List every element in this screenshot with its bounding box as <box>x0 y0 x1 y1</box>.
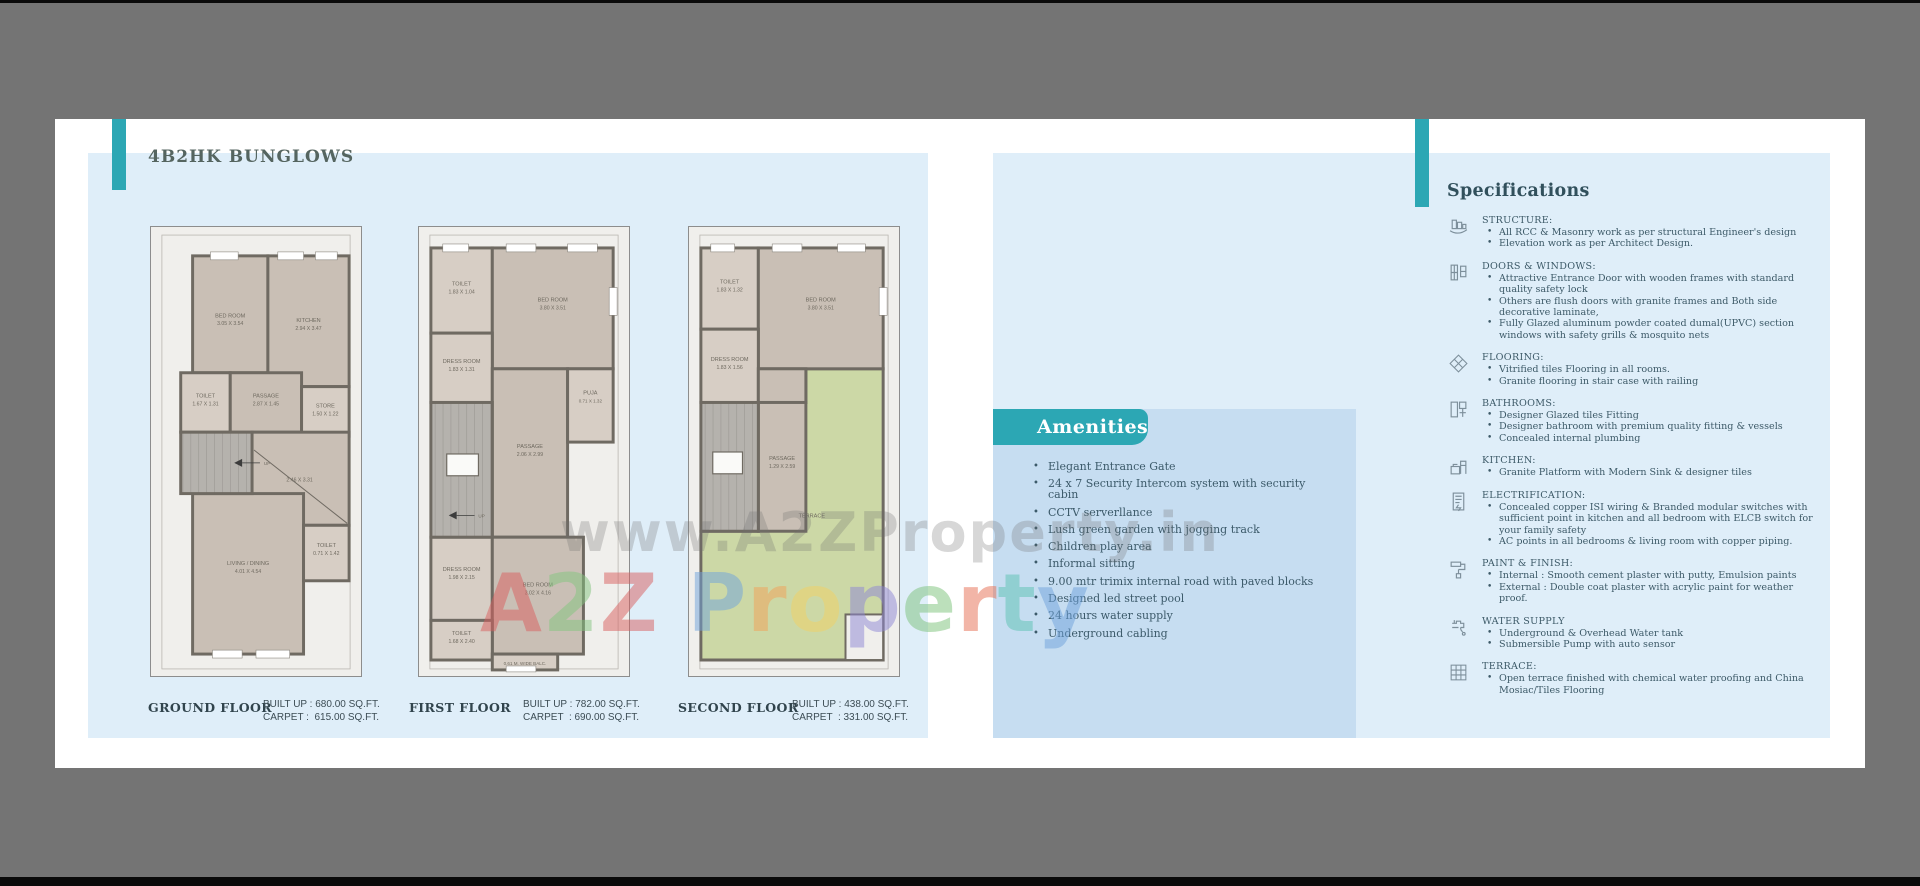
spec-item: AC points in all bedrooms & living room … <box>1482 536 1822 547</box>
room-dims: 3.02 X 4.16 <box>525 591 551 597</box>
room-label: TOILET <box>452 631 472 637</box>
second-floor-name: SECOND FLOOR <box>678 700 799 715</box>
spec-heading: KITCHEN: <box>1482 455 1822 466</box>
first-floor-name: FIRST FLOOR <box>409 700 511 715</box>
stairs-up-label: UP <box>264 461 270 466</box>
kitchen-icon <box>1448 456 1469 477</box>
spec-item: Elevation work as per Architect Design. <box>1482 238 1822 249</box>
room-label: PASSAGE <box>517 444 543 450</box>
doors-windows-icon <box>1448 262 1469 283</box>
room-label: TOILET <box>720 280 740 286</box>
terrace-label: TERRACE <box>799 513 826 519</box>
ground-floor-plan: UP BED ROOM 3.05 X 3.54 KITCHEN 2.94 X 3… <box>150 226 362 677</box>
spec-heading: ELECTRIFICATION: <box>1482 490 1822 501</box>
ground-floor-name: GROUND FLOOR <box>148 700 272 715</box>
spec-heading: BATHROOMS: <box>1482 398 1822 409</box>
room-dims: 3.05 X 3.54 <box>217 321 243 327</box>
second-floor-plan: TOILET 1.83 X 1.32 BED ROOM 3.80 X 3.51 … <box>688 226 900 677</box>
spec-item: Designer bathroom with premium quality f… <box>1482 421 1822 432</box>
spec-item: Designer Glazed tiles Fitting <box>1482 410 1822 421</box>
spec-sections: STRUCTURE:All RCC & Masonry work as per … <box>1448 215 1840 707</box>
room-label: DRESS ROOM <box>711 357 749 363</box>
floor-labels-row: GROUND FLOOR BUILT UP : 680.00 SQ.FT.CAR… <box>55 697 975 731</box>
room-label: LIVING / DINING <box>227 561 269 567</box>
amenity-item: Underground cabling <box>1027 628 1337 639</box>
room-dims: 1.83 X 1.31 <box>448 367 474 373</box>
spec-section: FLOORING:Vitrified tiles Flooring in all… <box>1448 352 1840 387</box>
teal-accent-bar-right <box>1415 119 1429 207</box>
first-floor-areas: BUILT UP : 782.00 SQ.FT.CARPET : 690.00 … <box>523 698 640 724</box>
second-floor-areas: BUILT UP : 438.00 SQ.FT.CARPET : 331.00 … <box>792 698 909 724</box>
room-dims: 2.46 X 3.31 <box>286 478 312 484</box>
room-label: TOILET <box>196 394 216 400</box>
spec-heading: FLOORING: <box>1482 352 1822 363</box>
room-dims: 2.94 X 3.47 <box>295 326 321 332</box>
bottom-border-line <box>0 877 1920 886</box>
spec-heading: TERRACE: <box>1482 661 1822 672</box>
room-dims: 1.83 X 1.04 <box>448 290 474 296</box>
spec-section: ELECTRIFICATION:Concealed copper ISI wir… <box>1448 490 1840 548</box>
spec-section: KITCHEN:Granite Platform with Modern Sin… <box>1448 455 1840 478</box>
room-dims: 2.06 X 2.99 <box>517 452 543 458</box>
room-label: TOILET <box>317 543 337 549</box>
spec-heading: STRUCTURE: <box>1482 215 1822 226</box>
room-label: BED ROOM <box>523 583 554 589</box>
specifications-title: Specifications <box>1447 181 1590 201</box>
room-label: DRESS ROOM <box>443 359 481 365</box>
room-label: BED ROOM <box>806 297 837 303</box>
spec-heading: DOORS & WINDOWS: <box>1482 261 1822 272</box>
room-dims: 1.83 X 1.56 <box>716 365 742 371</box>
room-dims: 1.98 X 2.15 <box>448 575 474 581</box>
spec-item: Open terrace finished with chemical wate… <box>1482 673 1822 696</box>
stairs-up-label: UP <box>478 513 484 518</box>
balcony-label: 0.61 M. WIDE BALC. <box>504 661 547 666</box>
room-label: TOILET <box>452 282 472 288</box>
watermark-letter: r <box>957 557 997 650</box>
amenities-list: Elegant Entrance Gate24 x 7 Security Int… <box>1027 461 1337 645</box>
spec-section: TERRACE:Open terrace finished with chemi… <box>1448 661 1840 696</box>
ground-floor-areas: BUILT UP : 680.00 SQ.FT.CARPET : 615.00 … <box>263 698 380 724</box>
water-supply-icon <box>1448 617 1469 638</box>
spec-item: Concealed internal plumbing <box>1482 433 1822 444</box>
terrace-icon <box>1448 662 1469 683</box>
spec-item: Fully Glazed aluminum powder coated duma… <box>1482 318 1822 341</box>
structure-icon <box>1448 216 1469 237</box>
amenity-item: 24 hours water supply <box>1027 610 1337 621</box>
bathrooms-icon <box>1448 399 1469 420</box>
room-dims: 1.83 X 1.32 <box>716 288 742 294</box>
room-dims: 1.67 X 1.31 <box>192 401 218 407</box>
spec-item: Submersible Pump with auto sensor <box>1482 639 1822 650</box>
amenity-item: 9.00 mtr trimix internal road with paved… <box>1027 576 1337 587</box>
teal-accent-bar-left <box>112 119 126 190</box>
room-dims: 3.80 X 3.51 <box>540 305 566 311</box>
spec-item: All RCC & Masonry work as per structural… <box>1482 227 1822 238</box>
first-floor-plan: UP TOILET 1.83 X 1.04 BED ROOM 3.80 X 3.… <box>418 226 630 677</box>
ground-floor-plan-drawing: UP BED ROOM 3.05 X 3.54 KITCHEN 2.94 X 3… <box>151 227 361 676</box>
room-dims: 1.29 X 2.59 <box>769 464 795 470</box>
spec-heading: PAINT & FINISH: <box>1482 558 1822 569</box>
room-label: PUJA <box>583 391 597 397</box>
spec-section: DOORS & WINDOWS:Attractive Entrance Door… <box>1448 261 1840 341</box>
spec-section: PAINT & FINISH:Internal : Smooth cement … <box>1448 558 1840 604</box>
room-dims: 2.87 X 1.45 <box>253 401 279 407</box>
room-dims: 1.68 X 2.40 <box>448 639 474 645</box>
spec-item: Concealed copper ISI wiring & Branded mo… <box>1482 502 1822 536</box>
room-dims: 1.50 X 1.22 <box>312 411 338 417</box>
flooring-icon <box>1448 353 1469 374</box>
room-label: BED ROOM <box>538 297 569 303</box>
room-dims: 0.71 X 1.32 <box>579 398 603 403</box>
amenities-title-tab: Amenities <box>993 409 1148 445</box>
amenity-item: Designed led street pool <box>1027 593 1337 604</box>
room-label: KITCHEN <box>296 318 320 324</box>
amenity-item: 24 x 7 Security Intercom system with sec… <box>1027 478 1337 500</box>
room-dims: 3.80 X 3.51 <box>808 305 834 311</box>
paint-finish-icon <box>1448 559 1469 580</box>
amenity-item: CCTV serverllance <box>1027 507 1337 518</box>
spec-item: Internal : Smooth cement plaster with pu… <box>1482 570 1822 581</box>
spec-item: Vitrified tiles Flooring in all rooms. <box>1482 364 1822 375</box>
spec-item: Granite Platform with Modern Sink & desi… <box>1482 467 1822 478</box>
spec-item: External : Double coat plaster with acry… <box>1482 582 1822 605</box>
room-label: DRESS ROOM <box>443 567 481 573</box>
amenity-item: Informal sitting <box>1027 558 1337 569</box>
spec-item: Others are flush doors with granite fram… <box>1482 296 1822 319</box>
first-floor-plan-drawing: UP TOILET 1.83 X 1.04 BED ROOM 3.80 X 3.… <box>419 227 629 676</box>
amenity-item: Children play area <box>1027 541 1337 552</box>
spec-heading: WATER SUPPLY <box>1482 616 1822 627</box>
spec-item: Attractive Entrance Door with wooden fra… <box>1482 273 1822 296</box>
spec-section: WATER SUPPLYUnderground & Overhead Water… <box>1448 616 1840 651</box>
room-puja <box>568 369 614 442</box>
electrification-icon <box>1448 491 1469 512</box>
room-label: PASSAGE <box>253 394 279 400</box>
second-floor-plan-drawing: TOILET 1.83 X 1.32 BED ROOM 3.80 X 3.51 … <box>689 227 899 676</box>
white-page: 4B2HK BUNGLOWS UP <box>55 119 1865 768</box>
brochure-page: 4B2HK BUNGLOWS UP <box>0 0 1920 886</box>
spec-item: Granite flooring in stair case with rail… <box>1482 376 1822 387</box>
room-dims: 0.71 X 1.42 <box>313 551 339 557</box>
page-title: 4B2HK BUNGLOWS <box>148 147 354 167</box>
amenity-item: Lush green garden with jogging track <box>1027 524 1337 535</box>
room-dims: 4.01 X 4.54 <box>235 569 261 575</box>
amenity-item: Elegant Entrance Gate <box>1027 461 1337 472</box>
top-border-line <box>0 0 1920 3</box>
landing-area <box>758 369 806 403</box>
room-label: BED ROOM <box>215 313 246 319</box>
room-label: PASSAGE <box>769 456 795 462</box>
spec-section: STRUCTURE:All RCC & Masonry work as per … <box>1448 215 1840 250</box>
spec-section: BATHROOMS:Designer Glazed tiles FittingD… <box>1448 398 1840 444</box>
spec-item: Underground & Overhead Water tank <box>1482 628 1822 639</box>
room-label: STORE <box>316 403 335 409</box>
